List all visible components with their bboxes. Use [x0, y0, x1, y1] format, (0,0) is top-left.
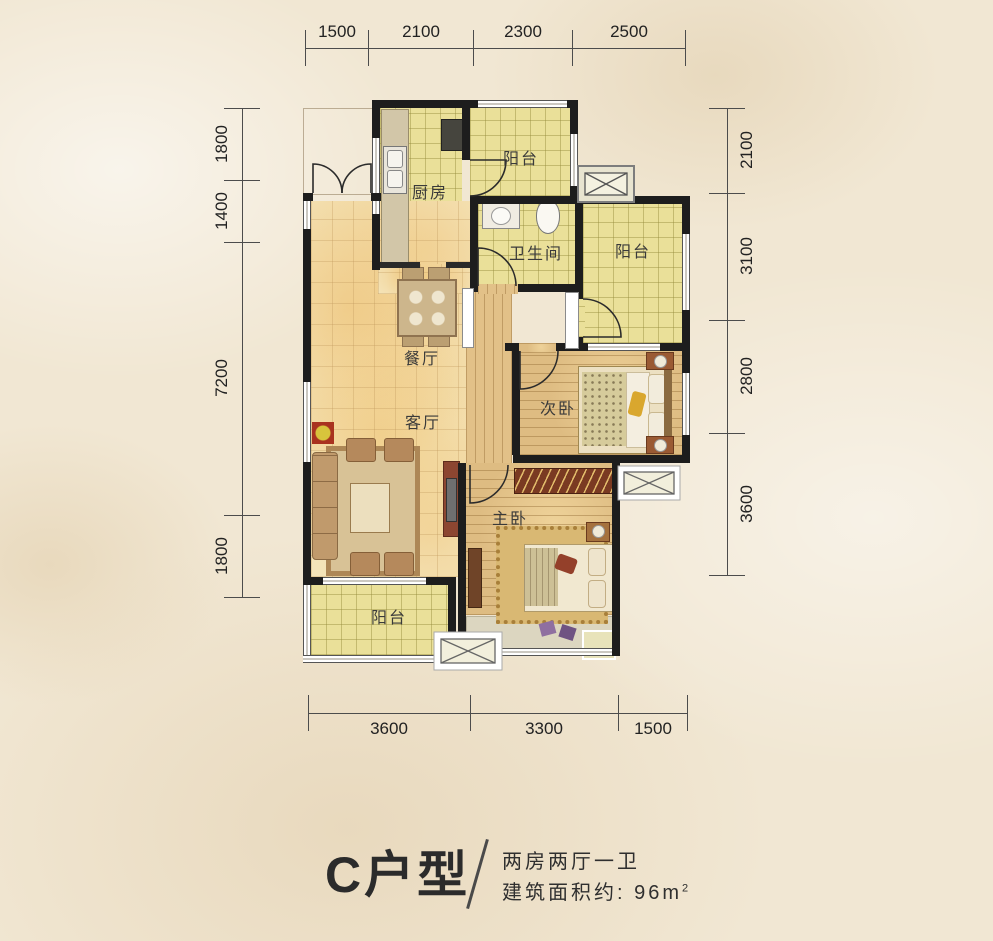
- wall-segment: [567, 100, 578, 108]
- wall-segment: [372, 100, 478, 108]
- room-label-bedroom-second: 次卧: [540, 395, 576, 419]
- pillow: [588, 548, 606, 576]
- side-table-decor: [312, 422, 334, 444]
- room-label-balcony-top: 阳台: [503, 145, 539, 169]
- dim-tick: [709, 193, 745, 194]
- wall-segment: [426, 577, 456, 585]
- kitchen-sink: [383, 146, 407, 194]
- washbasin-bowl: [491, 207, 511, 225]
- unit-layout-text: 两房两厅一卫: [502, 845, 640, 874]
- dim-tick: [687, 695, 688, 731]
- wall-segment: [505, 343, 519, 351]
- wall-segment: [372, 214, 380, 270]
- wall-segment: [513, 455, 690, 463]
- wall-segment: [372, 100, 380, 138]
- lamp: [592, 525, 605, 538]
- lamp: [654, 439, 667, 452]
- pillow: [588, 580, 606, 608]
- dim-line: [727, 108, 728, 575]
- armchair: [346, 438, 376, 462]
- wall-segment: [303, 462, 311, 577]
- dim-tick: [224, 108, 260, 109]
- lamp: [654, 355, 667, 368]
- room-label-bedroom-master: 主卧: [492, 505, 528, 529]
- dim-tick: [473, 30, 474, 66]
- dim-line: [242, 108, 243, 597]
- dim-value: 2300: [504, 22, 542, 42]
- window: [588, 343, 660, 351]
- armchair: [384, 552, 414, 576]
- floor-plan-page: 1500 2100 2300 2500 3600 3300 1500 1800 …: [0, 0, 993, 941]
- wall-segment: [660, 343, 690, 351]
- room-label-kitchen: 厨房: [412, 179, 448, 203]
- room-label-balcony-bottom: 阳台: [371, 604, 407, 628]
- window: [570, 134, 578, 186]
- dim-line: [308, 713, 687, 714]
- dim-value: 1500: [318, 22, 356, 42]
- dim-value: 2800: [737, 357, 757, 395]
- bedroom2-door-threshold: [519, 343, 556, 353]
- armchair: [384, 438, 414, 462]
- dim-tick: [224, 515, 260, 516]
- wall-segment: [303, 229, 311, 382]
- unit-area-text: 建筑面积约: 96m2: [502, 876, 691, 905]
- entry-recess: [303, 108, 374, 195]
- room-label-balcony-right: 阳台: [615, 238, 651, 262]
- window: [466, 648, 612, 656]
- bed-second-blanket: [582, 372, 626, 446]
- window: [303, 585, 311, 655]
- nightstand: [586, 522, 610, 542]
- dim-tick: [685, 30, 686, 66]
- dim-tick: [709, 108, 745, 109]
- dim-tick: [305, 30, 306, 66]
- tv-screen: [446, 478, 457, 522]
- nightstand: [646, 436, 674, 454]
- wall-segment: [371, 193, 381, 201]
- coffee-table: [350, 483, 390, 533]
- wall-segment: [575, 204, 583, 299]
- wall-segment: [458, 463, 466, 656]
- dim-value: 1500: [634, 719, 672, 739]
- wall-segment: [470, 204, 478, 292]
- room-label-living: 客厅: [405, 409, 441, 433]
- wall-segment: [462, 108, 470, 160]
- wall-segment: [303, 193, 313, 201]
- wall-segment: [446, 262, 470, 268]
- sink-basin: [387, 170, 403, 188]
- dim-value: 2500: [610, 22, 648, 42]
- wall-segment: [470, 196, 690, 204]
- opening-frame: [565, 292, 579, 349]
- sink-basin: [387, 150, 403, 168]
- dim-value: 3100: [737, 237, 757, 275]
- unit-type-title: C户型: [325, 835, 470, 907]
- ac-platform-right-icon: [618, 466, 680, 500]
- dim-line: [305, 48, 685, 49]
- room-label-dining: 餐厅: [404, 345, 440, 369]
- window: [303, 655, 456, 663]
- bathroom-washbasin: [482, 203, 520, 229]
- dim-value: 1800: [212, 125, 232, 163]
- dim-tick: [709, 433, 745, 434]
- bed-master-blanket: [524, 548, 558, 606]
- dim-tick: [709, 320, 745, 321]
- dim-tick: [470, 695, 471, 731]
- master-dresser: [468, 548, 482, 608]
- window: [372, 138, 380, 214]
- dim-value: 3300: [525, 719, 563, 739]
- room-balcony-right-floor: [583, 204, 682, 343]
- dim-value: 1800: [212, 537, 232, 575]
- dim-value: 3600: [370, 719, 408, 739]
- wall-segment: [448, 585, 456, 638]
- window: [682, 373, 690, 435]
- dim-value: 2100: [737, 131, 757, 169]
- sofa: [312, 452, 338, 560]
- window: [323, 577, 426, 585]
- dining-table: [397, 279, 457, 337]
- bathroom-toilet: [536, 200, 560, 234]
- wall-segment: [682, 351, 690, 373]
- dim-tick: [224, 597, 260, 598]
- wall-segment: [682, 196, 690, 234]
- unit-area-sup: 2: [682, 882, 691, 894]
- wall-segment: [570, 108, 578, 134]
- window: [303, 201, 311, 229]
- bathroom-door-threshold: [478, 284, 518, 294]
- dim-value: 7200: [212, 359, 232, 397]
- room-label-bathroom: 卫生间: [509, 240, 563, 264]
- nightstand: [646, 352, 674, 370]
- wall-segment: [512, 351, 520, 455]
- wall-segment: [518, 284, 575, 292]
- wardrobe: [514, 468, 616, 494]
- dim-tick: [618, 695, 619, 731]
- opening-frame: [462, 288, 474, 348]
- unit-area-value: 建筑面积约: 96m: [502, 882, 682, 904]
- dim-tick: [572, 30, 573, 66]
- dim-value: 1400: [212, 192, 232, 230]
- wall-segment: [380, 262, 420, 268]
- dim-tick: [308, 695, 309, 731]
- window: [478, 100, 567, 108]
- wall-segment: [303, 577, 323, 585]
- armchair: [350, 552, 380, 576]
- wall-segment: [612, 463, 620, 656]
- window: [303, 382, 311, 462]
- dim-value: 2100: [402, 22, 440, 42]
- dim-tick: [224, 180, 260, 181]
- window: [682, 234, 690, 310]
- dim-tick: [224, 242, 260, 243]
- dim-tick: [709, 575, 745, 576]
- dim-value: 3600: [737, 485, 757, 523]
- dim-tick: [368, 30, 369, 66]
